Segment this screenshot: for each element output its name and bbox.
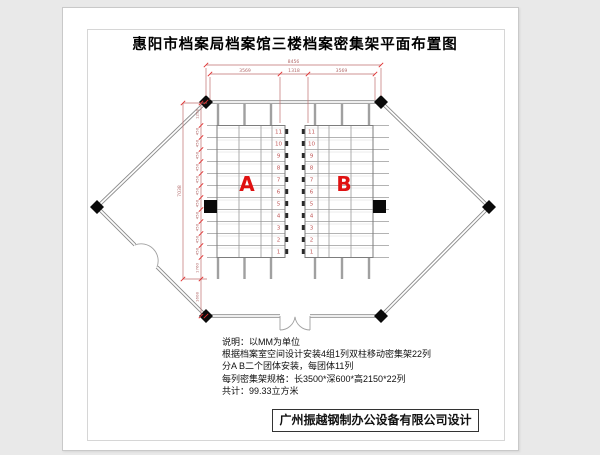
handle-tick (285, 201, 288, 206)
handle-tick (302, 249, 305, 254)
handle-tick (302, 201, 305, 206)
dim-top-middle: 1318 (288, 68, 300, 74)
specification-notes: 说明：以MM为单位 根据档案室空间设计安装4组1列双柱移动密集架22列 分A B… (222, 336, 442, 397)
handle-tick (302, 213, 305, 218)
row-number-a: 10 (275, 142, 283, 148)
row-number-b: 11 (308, 130, 316, 136)
row-number-a: 1 (277, 250, 281, 256)
handle-tick (285, 213, 288, 218)
dimension-label: 450 (195, 187, 200, 195)
note-line: 每列密集架规格：长3500*深600*高2150*22列 (222, 373, 442, 385)
dimension-label: 1608 (195, 292, 200, 302)
dim-top-right: 3569 (336, 68, 348, 74)
row-number-a: 11 (275, 130, 283, 136)
row-number-b: 6 (310, 190, 314, 196)
row-number-b: 1 (310, 250, 314, 256)
dim-top-left: 3569 (239, 68, 251, 74)
room-walls (97, 102, 489, 316)
handle-tick (285, 129, 288, 134)
dimension-label: 450 (195, 223, 200, 231)
handle-tick (285, 225, 288, 230)
row-number-a: 7 (277, 178, 281, 184)
row-number-a: 4 (277, 214, 281, 220)
dimension-label: 450 (195, 151, 200, 159)
column-square-left (204, 200, 217, 213)
dimension-label: 450 (195, 175, 200, 183)
handle-tick (302, 237, 305, 242)
handle-tick (285, 189, 288, 194)
row-number-b: 8 (310, 166, 314, 172)
dimension-label: 1298 (195, 109, 200, 119)
dimension-label: 450 (195, 211, 200, 219)
row-number-a: 3 (277, 226, 281, 232)
note-line: 共计：99.33立方米 (222, 385, 442, 397)
block-a-label: A (239, 172, 255, 196)
handle-tick (285, 237, 288, 242)
row-number-b: 4 (310, 214, 314, 220)
note-line: 分A B二个团体安装，每团体11列 (222, 360, 442, 372)
row-number-b: 5 (310, 202, 314, 208)
dimension-label: 450 (195, 235, 200, 243)
row-numbers: 11111010998877665544332211 (275, 130, 316, 256)
row-number-b: 2 (310, 238, 314, 244)
dimension-label: 1760 (195, 263, 200, 273)
company-title-block: 广州振越钢制办公设备有限公司设计 (272, 409, 479, 432)
handle-tick (285, 153, 288, 158)
handle-tick (285, 165, 288, 170)
handle-tick (302, 225, 305, 230)
handle-tick (285, 177, 288, 182)
dimension-label: 450 (195, 127, 200, 135)
double-door (280, 316, 310, 330)
row-number-a: 8 (277, 166, 281, 172)
handle-tick (302, 129, 305, 134)
handle-tick (285, 141, 288, 146)
dimension-label: 450 (195, 139, 200, 147)
row-number-a: 9 (277, 154, 281, 160)
handle-tick (302, 165, 305, 170)
row-handle-ticks (285, 129, 304, 254)
row-number-a: 2 (277, 238, 281, 244)
column-diamonds (90, 95, 496, 323)
handle-tick (302, 189, 305, 194)
dim-top-total: 8456 (288, 59, 300, 65)
handle-tick (302, 141, 305, 146)
drawing-canvas: 惠阳市档案局档案馆三楼档案密集架平面布置图 (0, 0, 600, 455)
note-line: 根据档案室空间设计安装4组1列双柱移动密集架22列 (222, 348, 442, 360)
row-number-b: 9 (310, 154, 314, 160)
side-door (135, 244, 158, 267)
handle-tick (285, 249, 288, 254)
row-number-a: 5 (277, 202, 281, 208)
dimension-label: 450 (195, 247, 200, 255)
row-number-b: 3 (310, 226, 314, 232)
row-number-b: 10 (308, 142, 316, 148)
handle-tick (302, 153, 305, 158)
note-line: 说明：以MM为单位 (222, 336, 442, 348)
dimension-label: 450 (195, 199, 200, 207)
dimension-label: 450 (195, 163, 200, 171)
block-b-label: B (336, 172, 351, 196)
row-number-b: 7 (310, 178, 314, 184)
dimension-chain-labels: 1298450450450450450450450450450450450176… (195, 109, 200, 302)
column-square-right (373, 200, 386, 213)
dim-left-total: 7038 (177, 185, 183, 197)
row-number-a: 6 (277, 190, 281, 196)
handle-tick (302, 177, 305, 182)
